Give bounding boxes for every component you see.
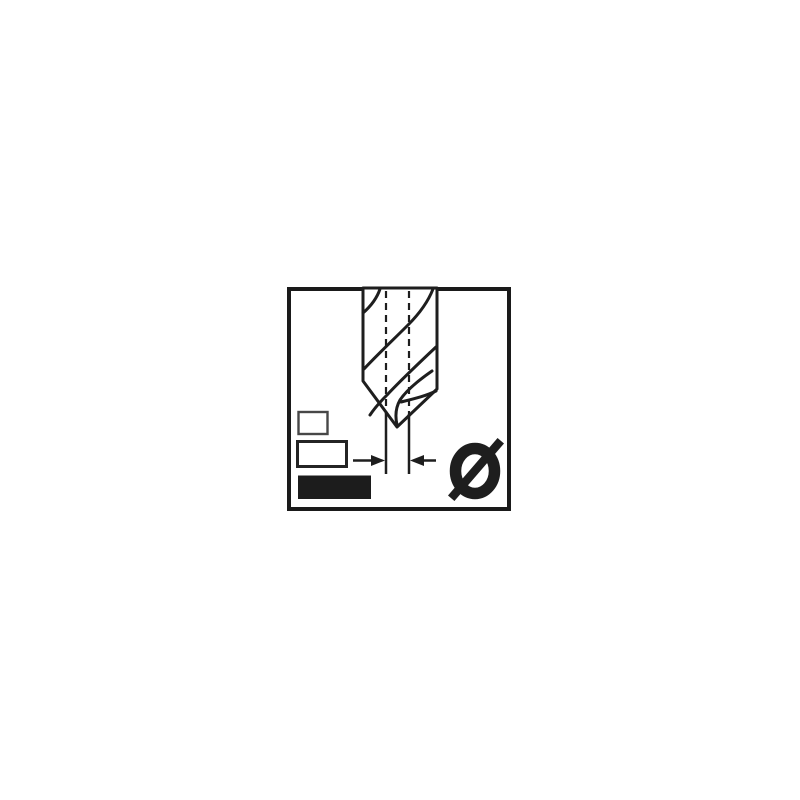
arrowhead-right-pointing-icon <box>371 455 385 466</box>
size-rect-small-outline <box>299 412 328 434</box>
diameter-symbol-icon <box>454 444 498 495</box>
size-rect-large-filled <box>298 476 371 500</box>
drill-diameter-pictogram <box>0 0 800 800</box>
drill-bit-illustration <box>363 288 437 427</box>
arrowhead-left-pointing-icon <box>410 455 424 466</box>
pictogram-stage: Ø <box>0 0 800 800</box>
size-rect-medium-outline <box>298 442 347 467</box>
diameter-dimension-arrows <box>353 455 436 466</box>
size-swatches <box>298 412 372 499</box>
